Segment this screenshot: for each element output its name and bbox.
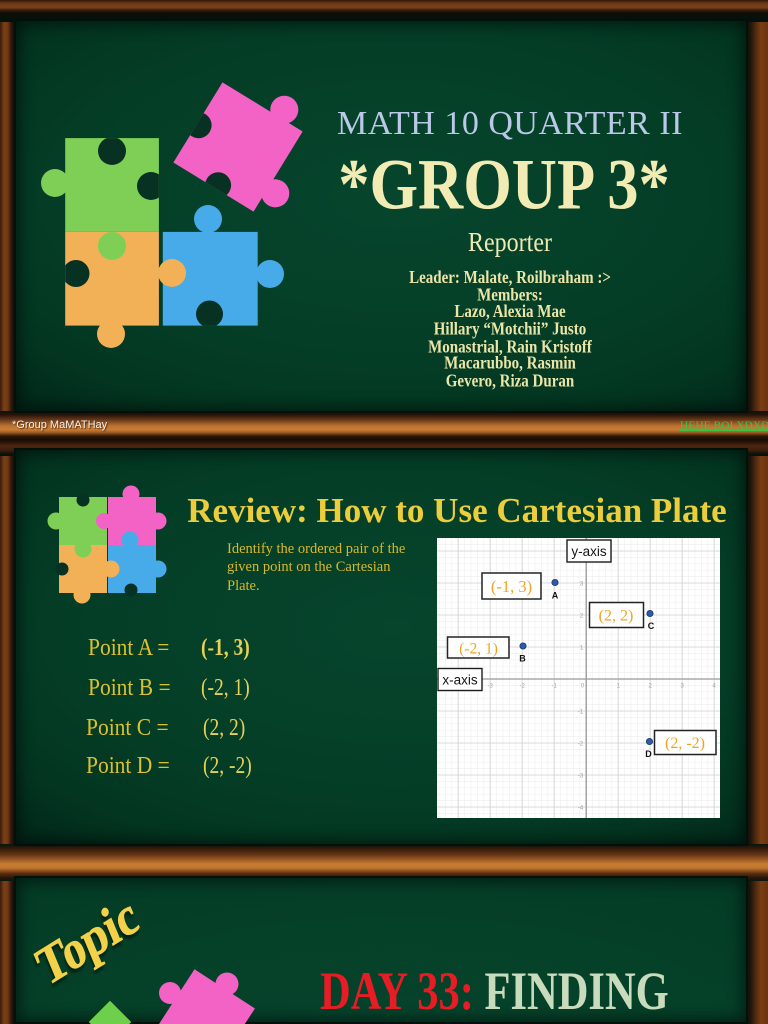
svg-text:A: A: [552, 591, 559, 601]
svg-text:-1: -1: [552, 684, 558, 690]
svg-text:(-2, 1): (-2, 1): [459, 641, 498, 658]
svg-text:(2, 2): (2, 2): [599, 608, 634, 625]
svg-text:y-axis: y-axis: [571, 544, 607, 559]
svg-text:(2, -2): (2, -2): [665, 735, 705, 752]
svg-text:D: D: [645, 749, 652, 759]
svg-text:x-axis: x-axis: [442, 673, 478, 688]
svg-text:-1: -1: [578, 710, 584, 716]
svg-text:-2: -2: [578, 742, 584, 748]
svg-text:C: C: [648, 621, 655, 631]
svg-text:-3: -3: [578, 774, 584, 780]
svg-text:-2: -2: [520, 684, 526, 690]
svg-text:-3: -3: [488, 684, 494, 690]
svg-text:(-1, 3): (-1, 3): [491, 577, 532, 596]
svg-text:-4: -4: [578, 806, 584, 812]
svg-text:B: B: [519, 654, 526, 664]
